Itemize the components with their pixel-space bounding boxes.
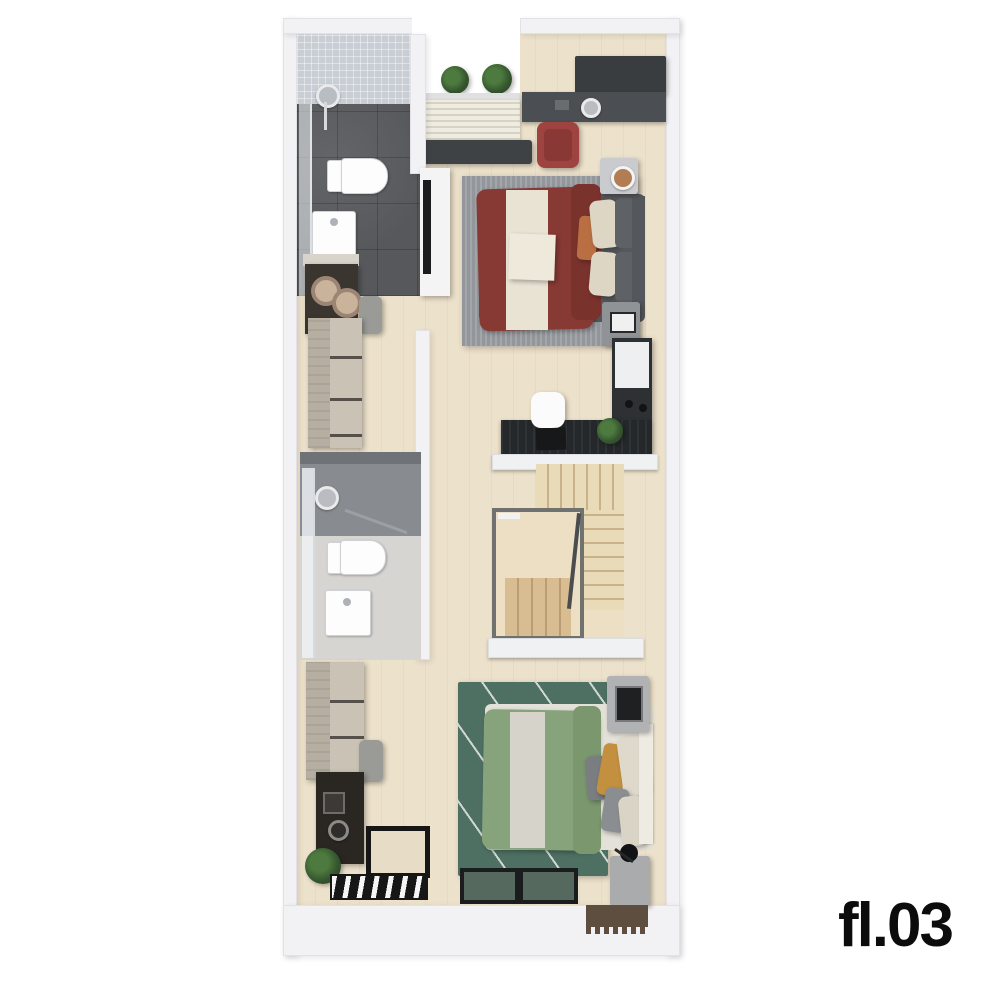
drawer-gap (330, 356, 362, 359)
shower-head-icon (316, 84, 340, 108)
knob-icon (639, 404, 647, 412)
wall-top-right (520, 18, 680, 34)
nightstand (610, 856, 650, 906)
floor-grate (330, 874, 428, 900)
toilet-bowl (340, 540, 386, 575)
stairs-bottom-ledge (488, 638, 644, 658)
faucet-icon (330, 218, 338, 226)
floorplan-canvas: fl.03 (0, 0, 1000, 1000)
bench (359, 296, 382, 334)
bathroom1-tiled-wall (297, 34, 410, 106)
stair-marker (498, 513, 520, 519)
air-conditioner (418, 140, 532, 164)
wall-bathroom1-right (410, 34, 426, 174)
study-chair-white (531, 392, 565, 428)
stairs-lower-flight (505, 578, 571, 636)
wall-shelf (575, 56, 666, 94)
desk-camera-icon (581, 98, 601, 118)
stairs-right-flight (584, 510, 624, 612)
nightstand-screen (610, 312, 636, 333)
plant-icon (482, 64, 512, 94)
nightstand-device (615, 686, 643, 722)
framed-opening (366, 826, 430, 878)
window-sill (412, 93, 520, 100)
bed1-headboard (632, 196, 645, 308)
stairs-landing (584, 610, 624, 640)
plant-icon (597, 418, 623, 444)
study-desk (501, 420, 651, 454)
knob-icon (625, 400, 633, 408)
basin-icon (332, 288, 362, 318)
drawer-gap (330, 736, 364, 739)
table-lamp-icon (611, 166, 635, 190)
window-mullion (515, 868, 523, 904)
shower-head-icon (315, 486, 339, 510)
tv-icon (423, 180, 431, 274)
wall-top-left (283, 18, 426, 34)
shower-arm (324, 102, 327, 130)
wall-right (666, 18, 680, 956)
faucet-icon (343, 598, 351, 606)
bed1-throw-blanket (508, 233, 556, 281)
toilet-bowl (341, 158, 388, 194)
kettle-icon (328, 820, 349, 841)
desk-accessory (555, 100, 569, 110)
drawer-gap (330, 434, 362, 437)
doormat-fringe (586, 927, 648, 934)
bathroom2-sink (325, 590, 371, 636)
glass-wall (302, 468, 315, 658)
coffee-machine-icon (323, 792, 345, 814)
desk-chair-seat (544, 129, 572, 161)
wardrobe-cabinet (615, 342, 649, 388)
dresser-drawers (330, 318, 362, 448)
laptop-icon (536, 427, 567, 450)
wall-left (283, 18, 297, 956)
stairs-upper-flight (536, 464, 624, 510)
bed2-headboard (639, 724, 653, 844)
bed2-runner (510, 712, 545, 848)
drawer-gap (330, 700, 364, 703)
floor-label: fl.03 (802, 890, 952, 961)
doormat (586, 905, 648, 927)
plant-icon (441, 66, 469, 94)
window-blinds (415, 100, 520, 144)
floor-plan (283, 8, 680, 956)
drawer-gap (330, 398, 362, 401)
